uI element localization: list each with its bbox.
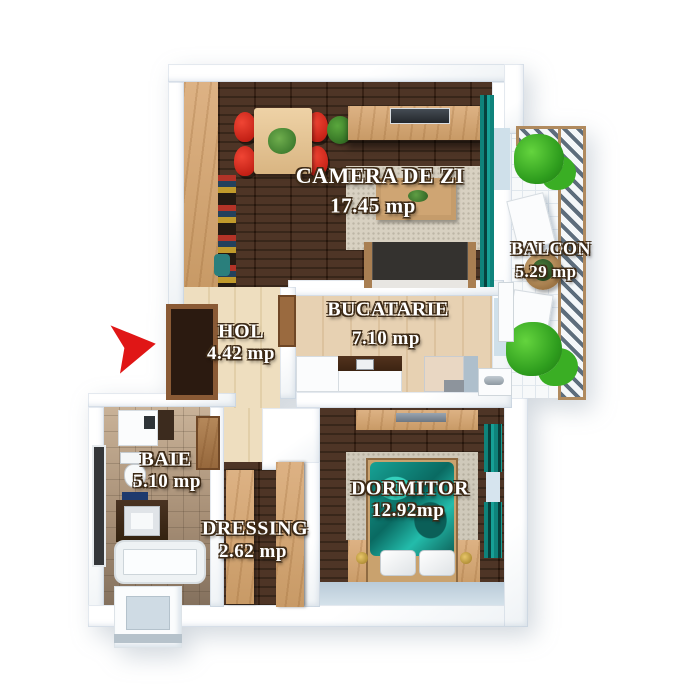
wall-right-lower — [504, 398, 528, 627]
label-baie: BAIE — [141, 449, 192, 472]
label-dormitor: DORMITOR — [351, 478, 469, 501]
bedroom-curtain-bottom — [484, 502, 502, 558]
dining-chair — [234, 146, 256, 176]
nightstand-lamp-left — [356, 552, 368, 564]
area-bucatarie: 7.10 mp — [352, 328, 420, 350]
exterior-planter-tray — [126, 596, 170, 630]
exterior-planter-band — [114, 634, 182, 643]
decor-object — [214, 254, 230, 276]
label-hol: HOL — [218, 321, 264, 344]
bathroom-window — [92, 445, 106, 567]
nightstand-lamp-right — [460, 552, 472, 564]
wall-top-right-corner — [504, 64, 524, 134]
sofa — [372, 242, 468, 288]
floorplan-canvas: CAMERA DE ZI 17.45 mp BUCATARIE 7.10 mp … — [0, 0, 700, 700]
dining-chair — [234, 112, 256, 142]
kitchen-cabinet — [296, 356, 340, 392]
label-bucatarie: BUCATARIE — [327, 299, 449, 322]
bedroom-wall-face — [320, 582, 504, 605]
living-curtain — [480, 95, 494, 287]
area-dormitor: 12.92mp — [372, 500, 445, 522]
living-window-glass — [494, 128, 510, 190]
label-dressing: DRESSING — [202, 518, 308, 541]
bathroom-door — [196, 416, 220, 470]
kitchen-appliance — [444, 380, 464, 392]
bathtub — [114, 540, 206, 584]
washing-machine-door — [144, 416, 155, 429]
area-dressing: 2.62 mp — [219, 541, 287, 563]
wall-hall-bedroom-chunk — [262, 408, 320, 470]
bath-cabinet — [158, 410, 174, 440]
wall-left-upper — [168, 82, 184, 310]
area-camera-de-zi: 17.45 mp — [330, 194, 416, 219]
bath-sink — [124, 506, 160, 536]
bedroom-curtain-top — [484, 424, 502, 472]
apartment-building — [0, 0, 700, 700]
area-baie: 5.10 mp — [133, 471, 201, 493]
door-handle — [484, 376, 504, 385]
bedroom-window-glass — [486, 472, 500, 502]
wall-top — [168, 64, 524, 82]
kitchen-sink — [356, 359, 374, 370]
bed-pillow-right — [419, 550, 455, 576]
living-wardrobe — [184, 82, 218, 287]
area-balcon: 5.29 mp — [515, 262, 576, 282]
tv-panel — [390, 108, 450, 124]
bath-mat — [122, 492, 148, 500]
kitchen-fridge-panel — [464, 356, 478, 392]
hallway-corridor-floor — [224, 408, 262, 470]
sofa-arm-right — [468, 242, 476, 288]
balcony-door-leaf — [498, 282, 514, 342]
bed-pillow-left — [380, 550, 416, 576]
desk-laptop — [396, 413, 446, 422]
area-hol: 4.42 mp — [207, 343, 275, 365]
kitchen-door-frame — [278, 295, 296, 347]
label-balcon: BALCON — [511, 239, 591, 260]
label-camera-de-zi: CAMERA DE ZI — [296, 163, 465, 189]
sofa-arm-left — [364, 242, 372, 288]
